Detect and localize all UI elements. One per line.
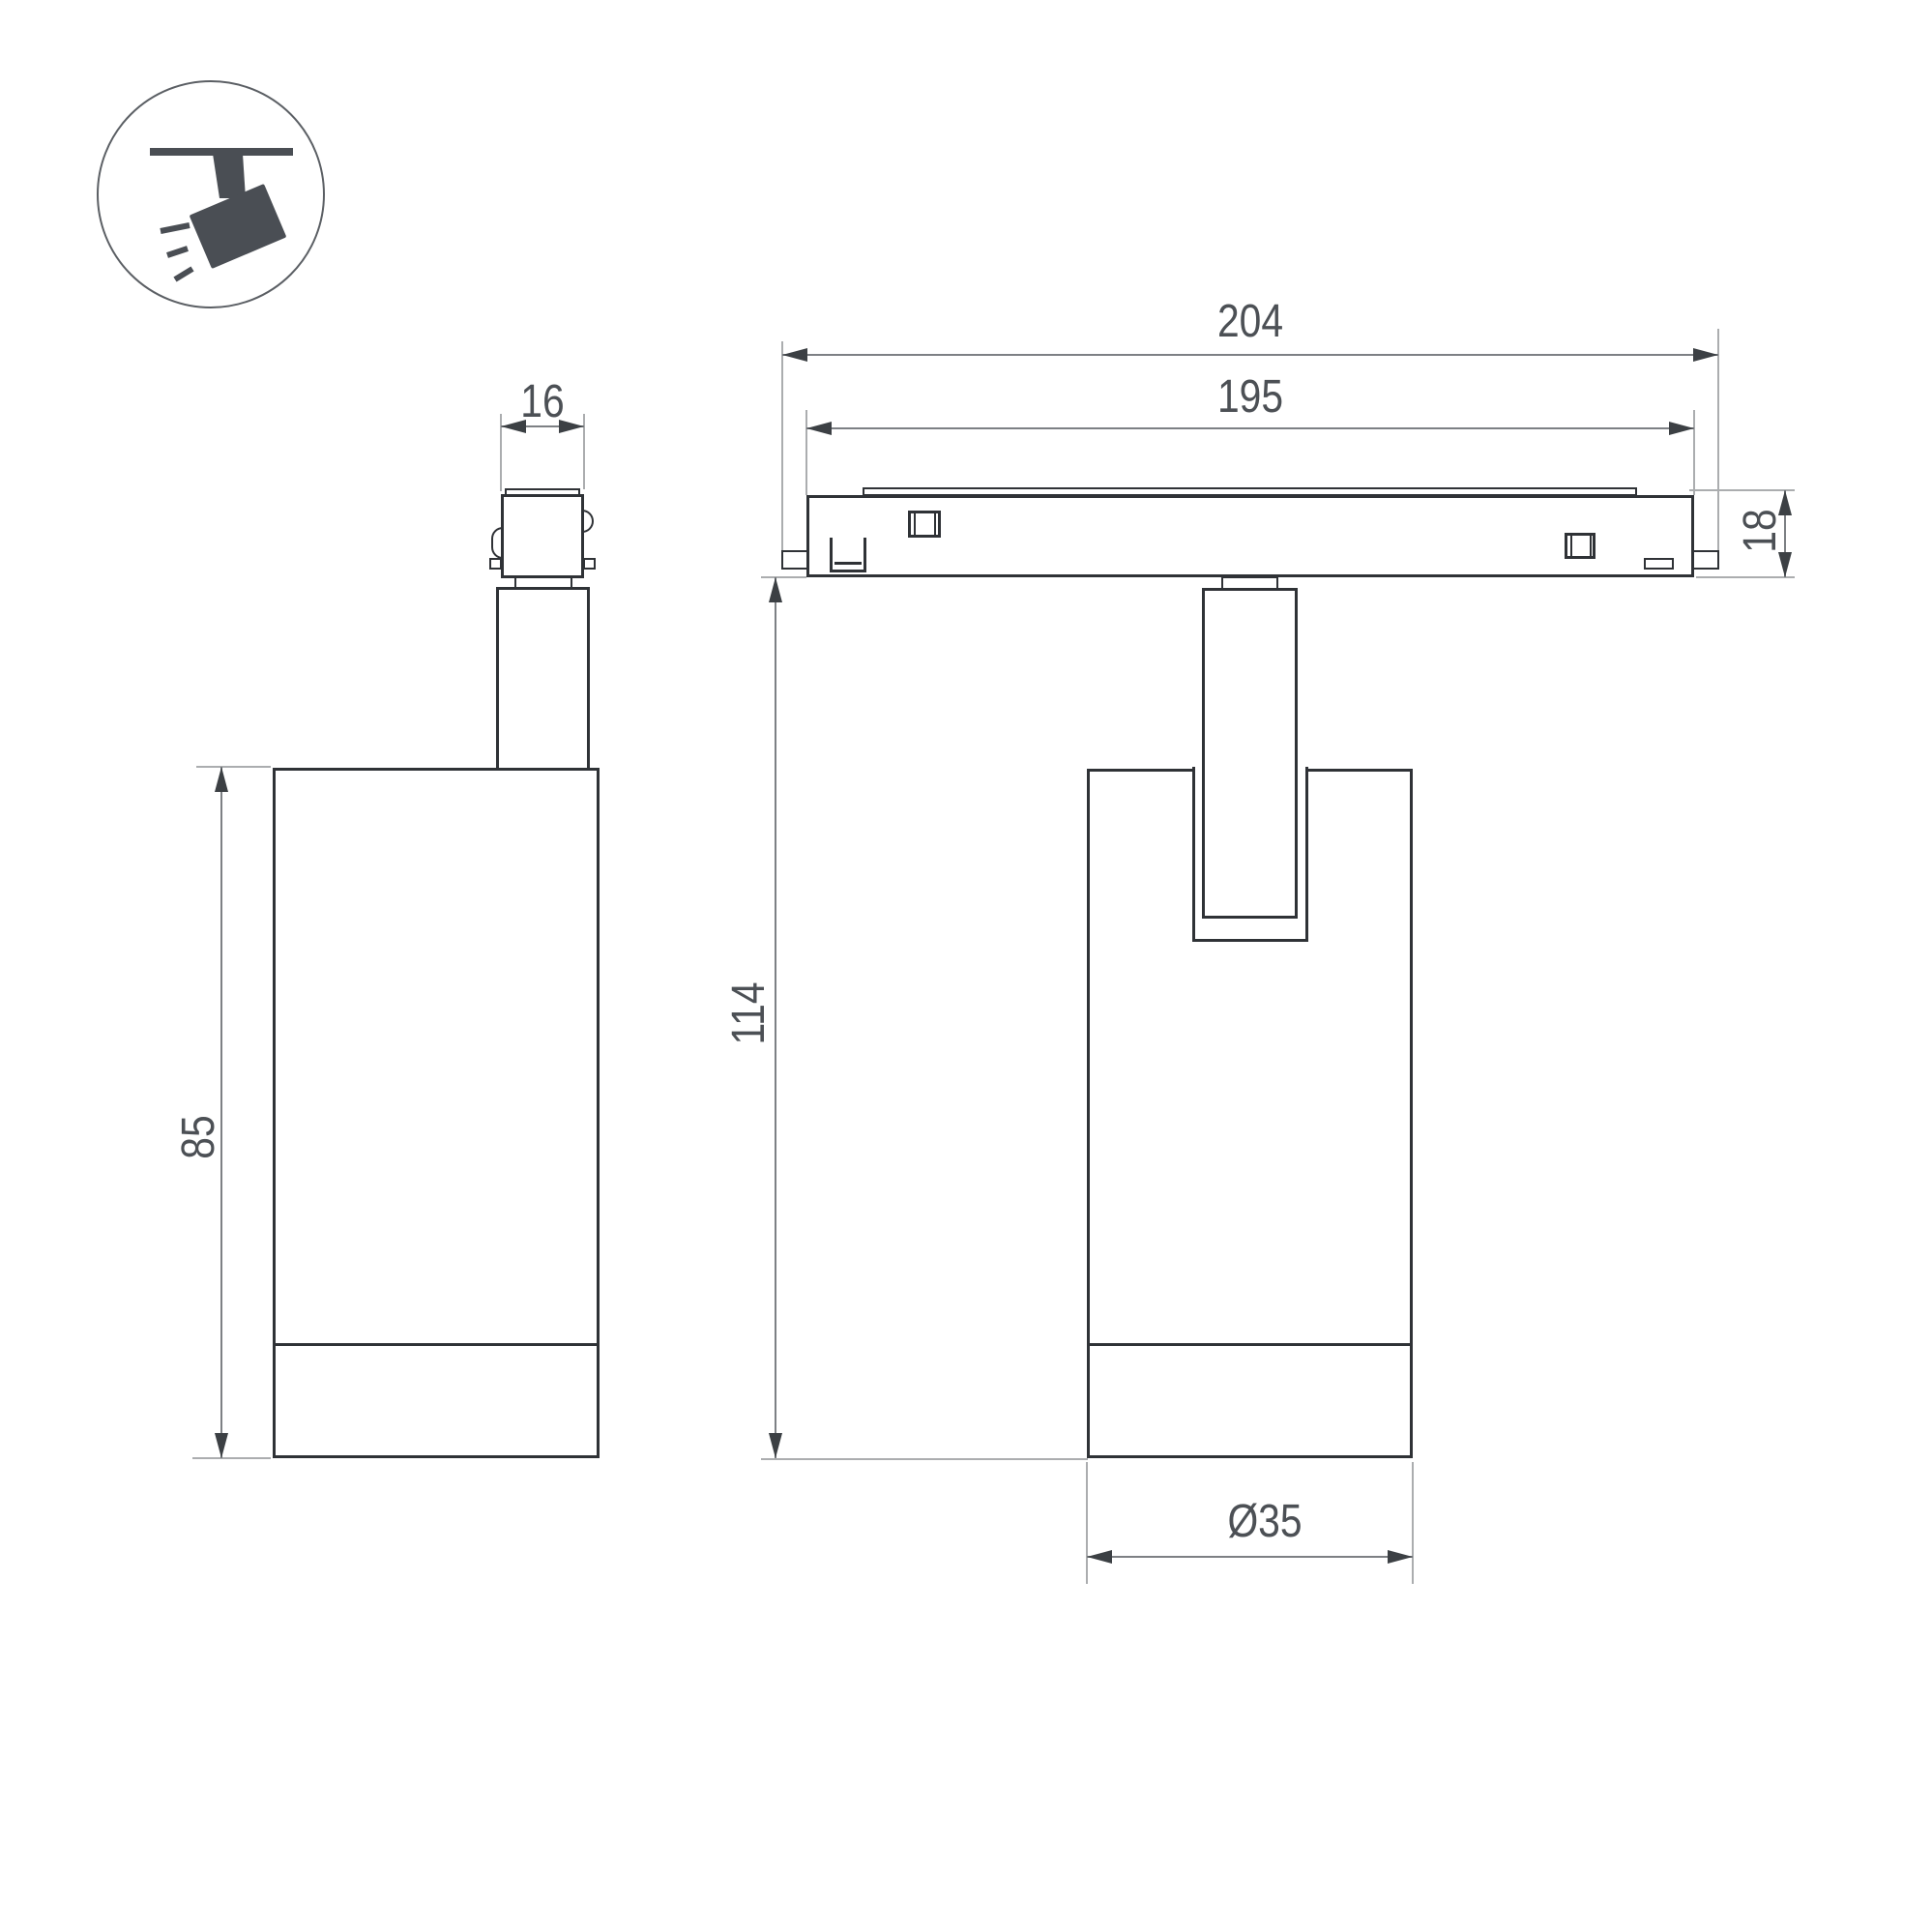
- extension-line: [192, 1457, 271, 1459]
- dimension-arrow: [215, 767, 228, 792]
- dimension-arrow: [1388, 1550, 1413, 1564]
- track-window-right-rail: [1590, 536, 1592, 556]
- track-window-right-rail: [1570, 536, 1572, 556]
- dim-label-body-diameter: Ø35: [1227, 1499, 1302, 1545]
- dimension-line: [220, 767, 222, 1458]
- extension-line: [761, 1458, 1088, 1460]
- lamp-body-side: [273, 768, 600, 1458]
- extension-line: [196, 766, 271, 768]
- track-slot: [1644, 558, 1674, 570]
- track-clip: [830, 538, 866, 572]
- extension-line: [781, 341, 783, 550]
- extension-line: [1412, 1462, 1414, 1584]
- dimension-line: [1087, 1556, 1413, 1558]
- dimension-line: [782, 354, 1718, 356]
- lamp-bezel-line-front: [1090, 1343, 1410, 1346]
- technical-drawing-canvas: 16 85 204 195: [0, 0, 1932, 1932]
- stem-front: [1202, 588, 1298, 919]
- dimension-arrow: [1778, 552, 1792, 577]
- extension-line: [1086, 1462, 1088, 1584]
- extension-line: [1717, 329, 1719, 550]
- dimension-arrow: [1693, 348, 1718, 362]
- dimension-arrow: [1087, 1550, 1112, 1564]
- track-clip-inner-line: [834, 562, 862, 565]
- dim-label-fixture-height: 114: [726, 981, 773, 1044]
- dimension-line: [806, 427, 1694, 429]
- dimension-arrow: [769, 1433, 782, 1458]
- track-light-icon: [0, 0, 387, 387]
- dim-label-track-height: 18: [1738, 509, 1784, 552]
- dimension-arrow: [769, 577, 782, 602]
- dim-label-track-overall: 204: [1217, 299, 1283, 345]
- track-window-left-rail: [934, 513, 936, 535]
- dimension-arrow: [215, 1433, 228, 1458]
- stem-side: [496, 587, 590, 771]
- stem-neck-front: [1221, 576, 1278, 590]
- track-window-left-rail: [914, 513, 916, 535]
- dim-label-track-body: 195: [1217, 374, 1283, 421]
- dimension-line: [775, 577, 776, 1458]
- lamp-bezel-line-side: [276, 1343, 597, 1346]
- dim-label-adapter-width: 16: [520, 379, 564, 425]
- icon-circle: [98, 81, 324, 307]
- track-left-tab: [781, 550, 808, 570]
- adapter-tab-right: [583, 558, 596, 570]
- adapter-body-side: [501, 494, 584, 578]
- track-right-tab: [1692, 550, 1719, 570]
- dimension-arrow: [782, 348, 807, 362]
- dimension-arrow: [1669, 422, 1694, 435]
- dimension-arrow: [806, 422, 832, 435]
- dim-label-body-height: 85: [176, 1115, 222, 1158]
